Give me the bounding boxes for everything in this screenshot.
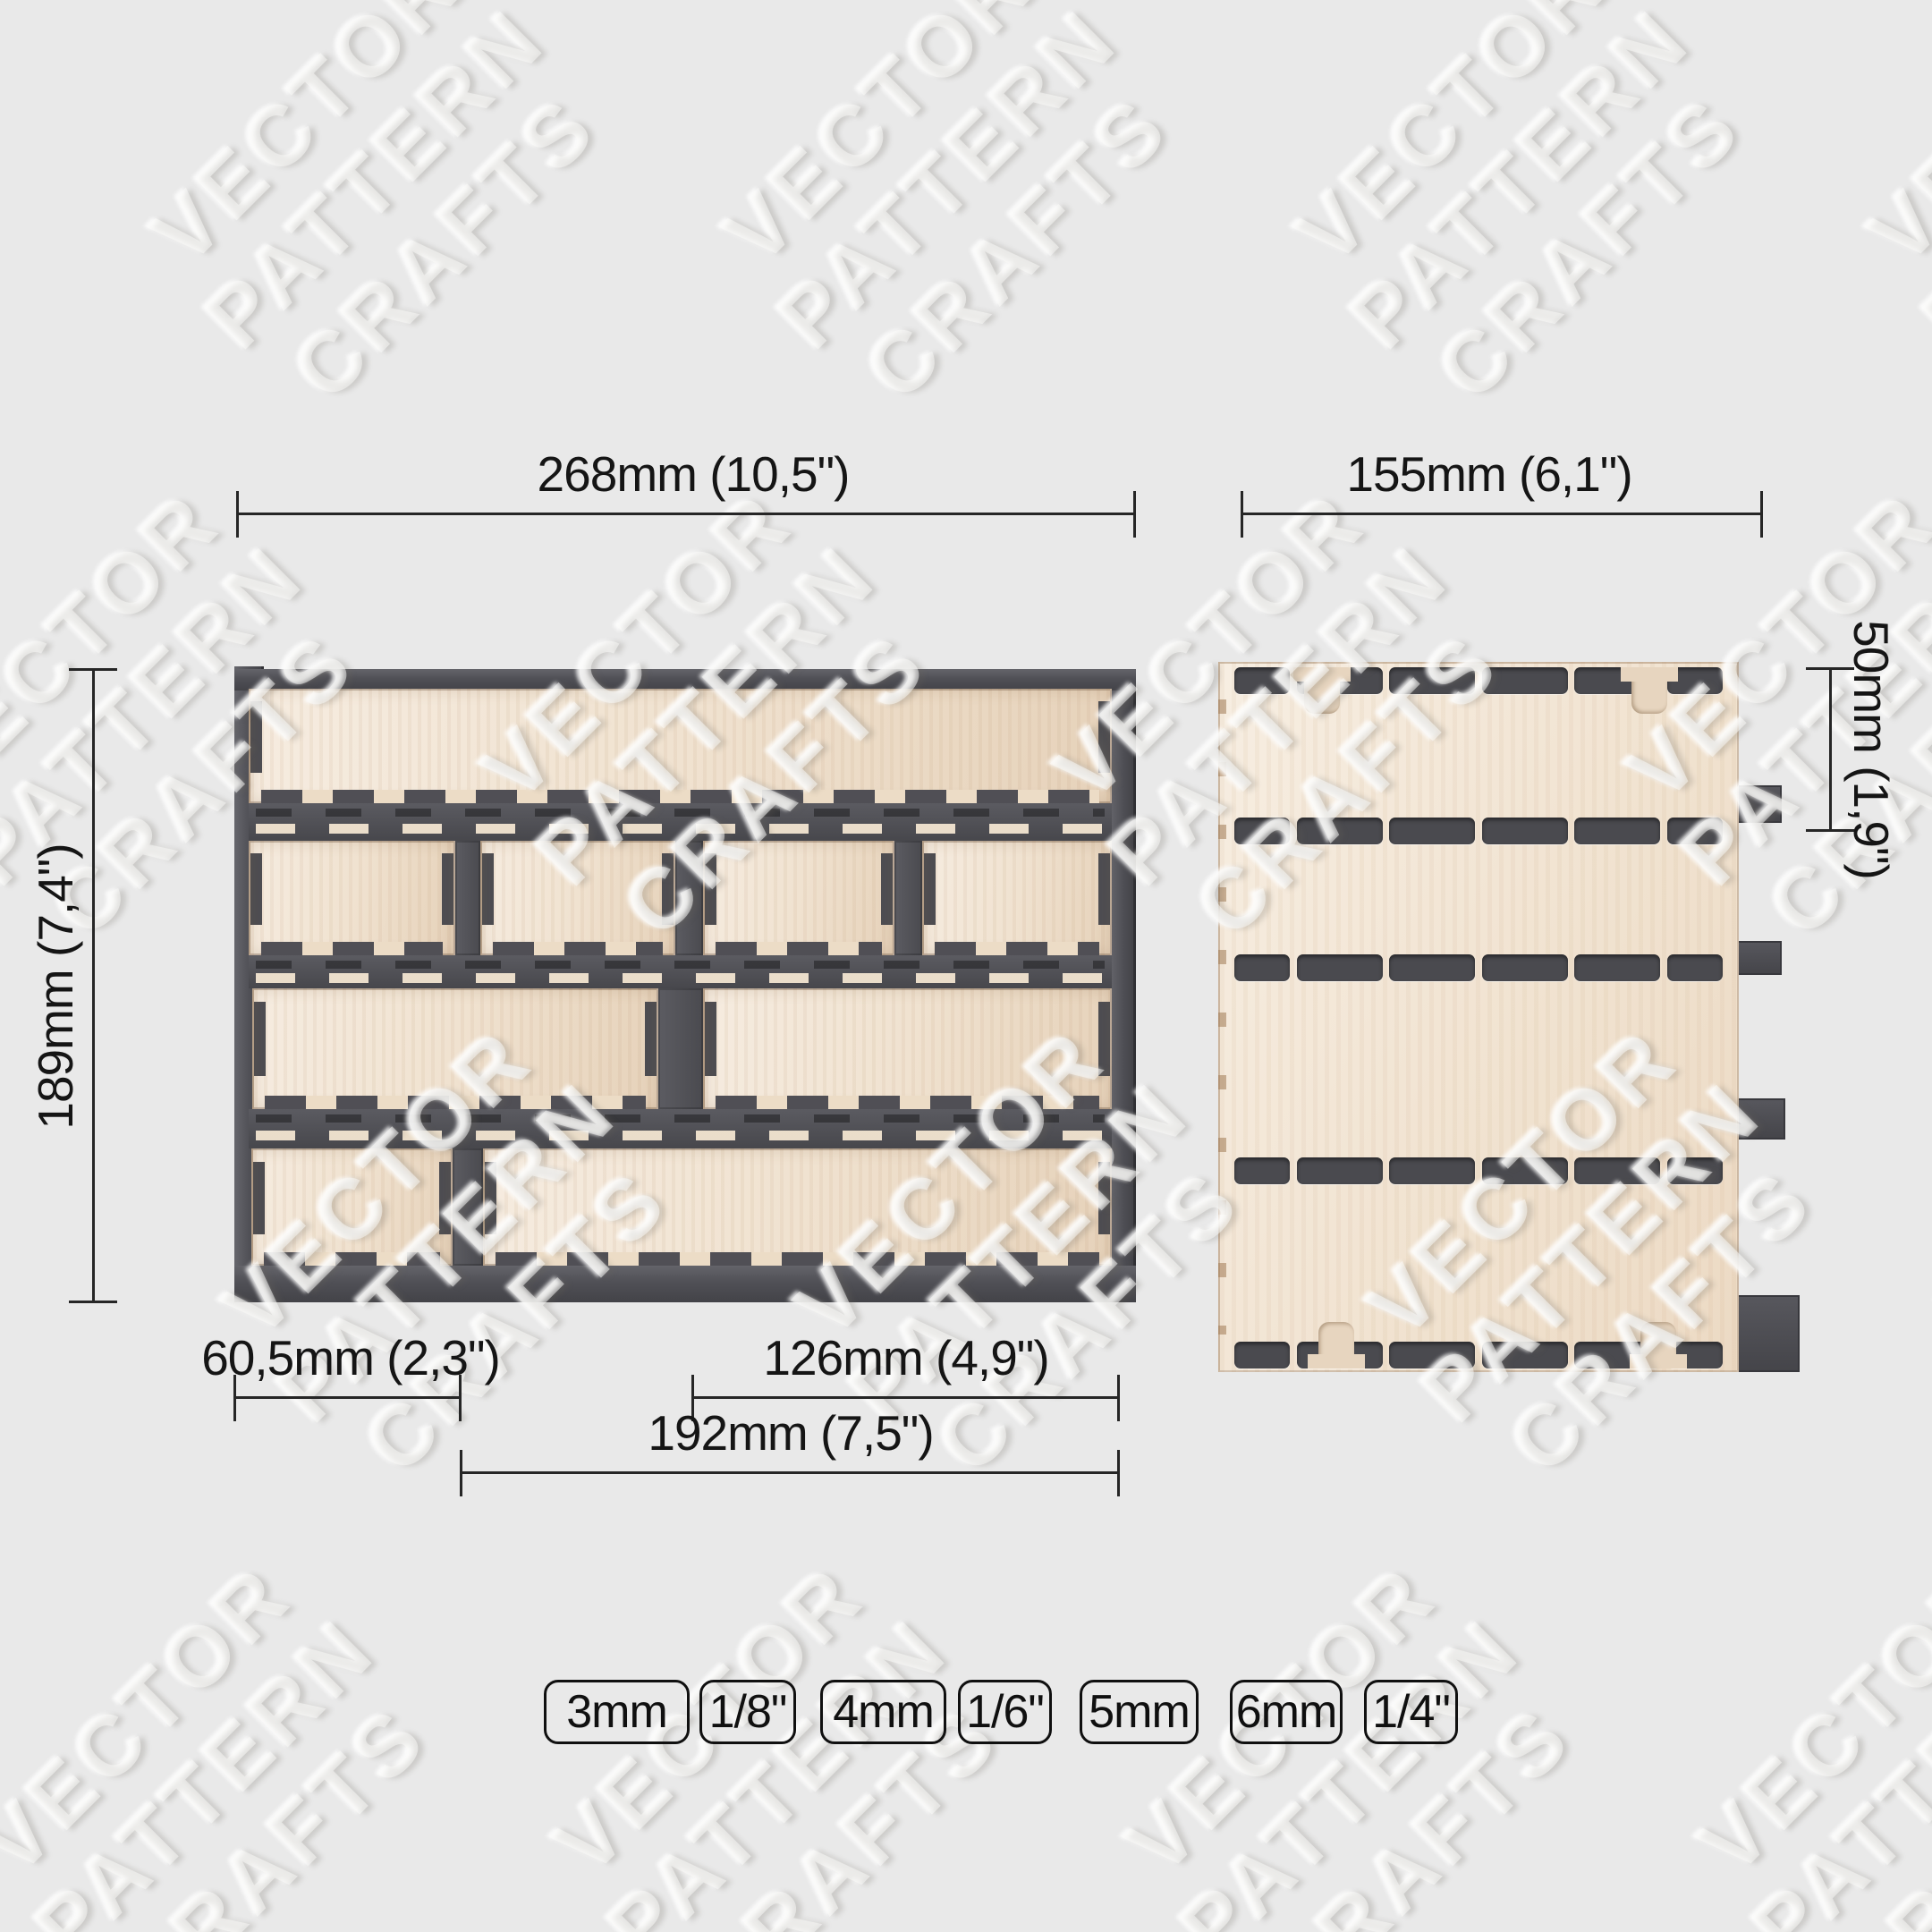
dimension-line <box>1829 669 1832 832</box>
dimension-tick <box>1760 491 1763 538</box>
thickness-badge-1-4in: 1/4" <box>1364 1680 1458 1744</box>
thickness-badge-5mm: 5mm <box>1080 1680 1199 1744</box>
thickness-badge-6mm: 6mm <box>1230 1680 1343 1744</box>
dimension-tick <box>1241 491 1243 538</box>
dimension-label: 192mm (7,5") <box>648 1404 933 1462</box>
thickness-badge-3mm: 3mm <box>544 1680 690 1744</box>
dimensions-layer: 268mm (10,5") 155mm (6,1") 189mm (7,4") … <box>0 0 1932 1932</box>
dimension-tick <box>460 1450 462 1496</box>
dimension-tick <box>1133 491 1136 538</box>
dimension-tick <box>236 491 239 538</box>
dimension-label: 189mm (7,4") <box>27 843 84 1129</box>
dimension-line <box>92 670 95 1303</box>
dimension-label: 60,5mm (2,3") <box>201 1329 500 1386</box>
dimension-line <box>693 1396 1120 1399</box>
dimension-label: 50mm (1,9") <box>1843 620 1900 879</box>
dimension-tick <box>1117 1375 1120 1421</box>
thickness-badge-1-6in: 1/6" <box>958 1680 1052 1744</box>
dimension-label: 155mm (6,1") <box>1346 445 1631 503</box>
laser-cut-pattern-sheet: VECTORPATTERNCRAFTSVECTORPATTERNCRAFTSVE… <box>0 0 1932 1932</box>
dimension-line <box>238 513 1136 515</box>
dimension-line <box>1242 513 1762 515</box>
dimension-tick <box>1117 1450 1120 1496</box>
dimension-line <box>462 1471 1120 1474</box>
dimension-tick <box>69 668 117 671</box>
dimension-tick <box>69 1301 117 1303</box>
dimension-label: 126mm (4,9") <box>763 1329 1048 1386</box>
thickness-badge-4mm: 4mm <box>820 1680 946 1744</box>
thickness-badge-1-8in: 1/8" <box>699 1680 796 1744</box>
dimension-line <box>235 1396 462 1399</box>
dimension-label: 268mm (10,5") <box>538 445 850 503</box>
